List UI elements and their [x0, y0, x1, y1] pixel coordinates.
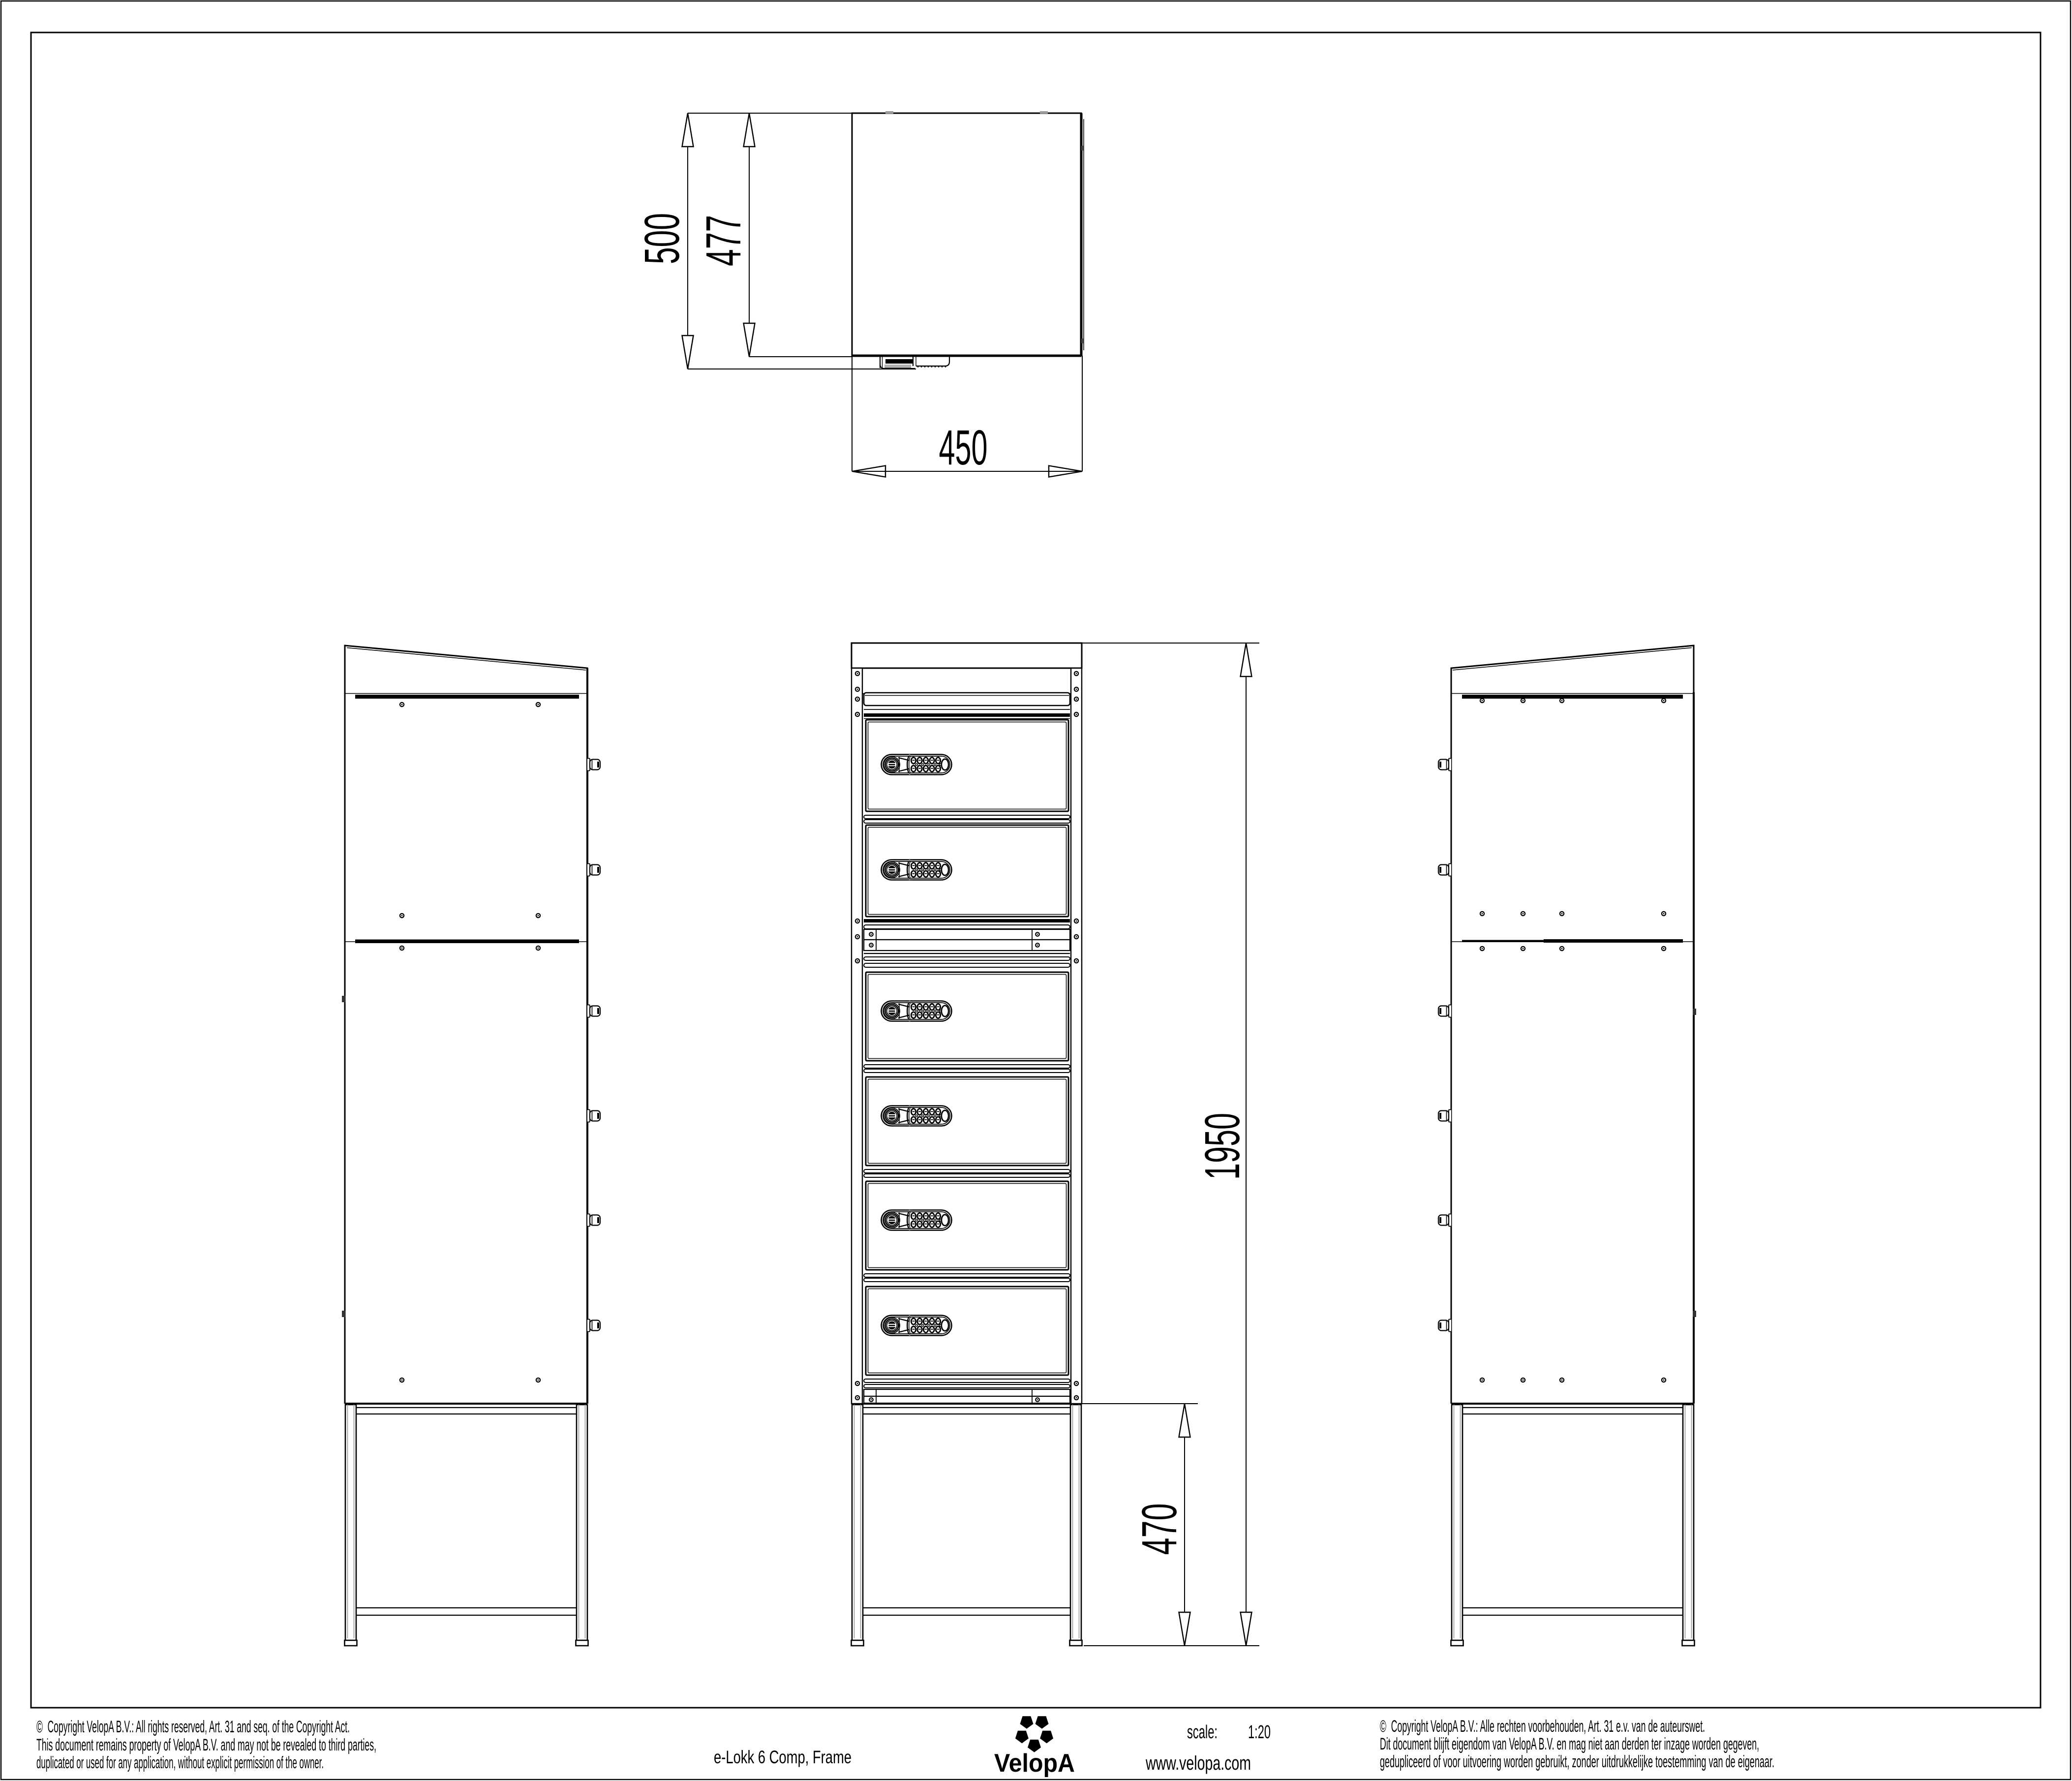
svg-text:1:20: 1:20 [1248, 1722, 1271, 1743]
svg-text:© Copyright VelopA B.V.: Alle: © Copyright VelopA B.V.: Alle rechten vo… [1380, 1717, 1705, 1736]
svg-text:scale:: scale: [1187, 1722, 1218, 1743]
svg-text:© Copyright VelopA B.V.: All: © Copyright VelopA B.V.: All rights rese… [36, 1718, 350, 1736]
svg-text:This document remains property: This document remains property of VelopA… [36, 1736, 376, 1754]
svg-text:477: 477 [696, 215, 751, 266]
svg-text:duplicated or used for any app: duplicated or used for any application, … [36, 1753, 324, 1772]
svg-text:1950: 1950 [1195, 1113, 1250, 1180]
svg-text:500: 500 [635, 213, 690, 264]
svg-text:gedupliceerd of voor uitvoerin: gedupliceerd of voor uitvoering worden g… [1380, 1752, 1774, 1771]
svg-text:450: 450 [939, 420, 988, 475]
svg-text:470: 470 [1132, 1504, 1187, 1555]
svg-text:www.velopa.com: www.velopa.com [1145, 1752, 1251, 1774]
svg-text:e-Lokk 6 Comp, Frame: e-Lokk 6 Comp, Frame [714, 1747, 852, 1767]
svg-text:Dit document blijft eigendom v: Dit document blijft eigendom van VelopA … [1380, 1735, 1759, 1753]
svg-text:VelopA: VelopA [994, 1749, 1075, 1778]
